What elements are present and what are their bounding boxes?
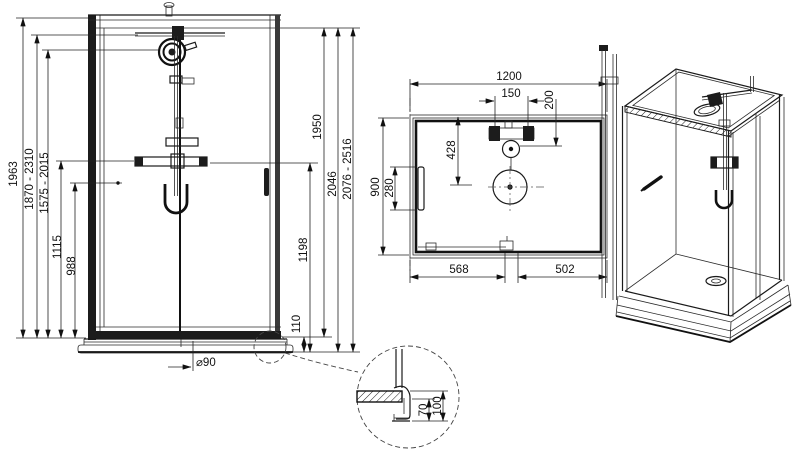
dim-glass-height: 1950 [312,114,324,140]
dim-valve-height: 988 [66,256,78,275]
top-view [410,98,607,274]
dim-door-right: 502 [555,264,574,276]
dim-width: 1200 [496,71,522,83]
dim-height-range-1: 1870 - 2310 [24,148,36,209]
shower-tray [78,339,293,353]
door-handle [264,168,269,196]
soap-shelf [166,138,198,146]
dim-slider-height: 1115 [52,235,64,259]
dim-total-height: 1963 [8,161,20,187]
right-frame-profile [275,15,280,332]
dim-cabin-height: 2046 [327,171,339,197]
dim-handle-height: 1198 [298,238,310,263]
bottom-rail [88,331,281,339]
left-frame-profile [88,15,96,340]
dim-valve-offset: 200 [544,90,556,109]
dim-depth: 900 [370,177,382,196]
shower-cabin-drawing: 1963 1870 - 2310 1575 - 2015 1115 988 19… [0,0,800,458]
iso-shower-column [693,76,753,208]
detail-view: 70 100 [285,346,459,448]
isometric-view [599,45,791,342]
dim-cabin-height-range: 2076 - 2516 [342,138,354,199]
door-roller [426,243,436,250]
top-view-handle [418,167,424,210]
dim-rose-offset: 428 [446,140,458,159]
iso-handle [644,177,661,189]
hand-shower-icon [165,184,187,213]
dim-door-left: 568 [449,264,468,276]
iso-drain [706,277,726,286]
iso-tray [616,254,791,342]
top-rail-hatched [625,106,731,137]
front-view-dimensions: 1963 1870 - 2310 1575 - 2015 1115 988 19… [8,18,360,371]
dim-handle-length: 280 [384,178,396,197]
mixer-valve [489,121,534,170]
dim-height-range-2: 1575 - 2015 [39,152,51,213]
dim-valve-spacing: 150 [501,88,520,100]
detail-leader [285,353,358,372]
dim-total-profile-height: 100 [432,396,444,415]
dim-profile-height: 70 [418,404,430,417]
wall-profile [599,45,618,300]
dim-drain-diameter: ⌀90 [196,357,216,369]
dim-tray-height: 110 [291,315,303,333]
door-bracket [500,241,513,250]
technical-drawing-page: 1963 1870 - 2310 1575 - 2015 1115 988 19… [0,0,800,458]
detail-tray-section [357,391,402,402]
